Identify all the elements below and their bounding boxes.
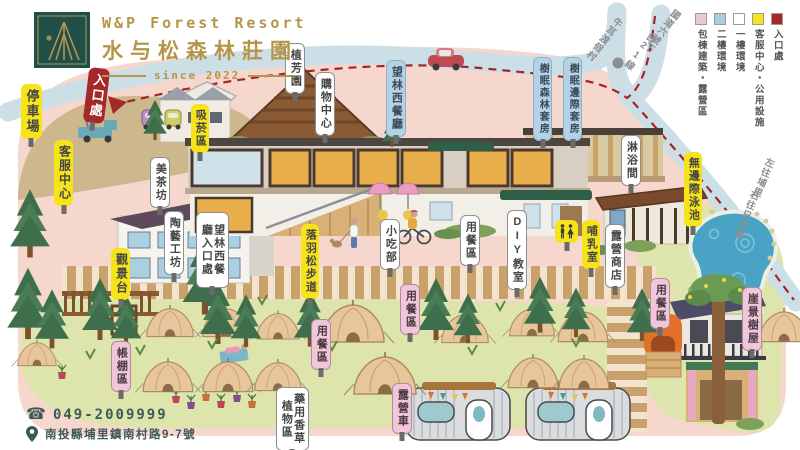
map-label-edge-suite: 樹眠邊際套房 [563, 57, 582, 141]
since-text: since 2022 [154, 69, 240, 82]
map-label-nursing-room: 哺乳室 [582, 220, 600, 269]
map-label-dining-b: 用餐區 [400, 284, 420, 335]
map-label-smoking-area: 吸菸區 [191, 104, 209, 153]
flower-pot [217, 394, 225, 408]
brand-since: since 2022 [102, 69, 307, 82]
map-label-viewing-deck: 觀景台 [111, 248, 130, 300]
legend-label: 客服中心・公用設施 [753, 29, 763, 128]
map-legend: 包棟建築・露營區二樓環境一樓環境客服中心・公用設施入口處 [694, 13, 784, 128]
legend-swatch [714, 13, 726, 25]
map-label-infinity-pool: 無邊際泳池 [684, 152, 702, 227]
map-label-west-restaurant: 望林西餐廳 [386, 60, 406, 137]
camper-van-2 [526, 382, 630, 440]
legend-label: 包棟建築・露營區 [696, 29, 706, 117]
map-label-tent-area: 帳棚區 [111, 341, 131, 392]
legend-item: 包棟建築・露營區 [694, 13, 708, 128]
flower-pot [248, 394, 256, 408]
rule-line [248, 75, 292, 77]
map-label-cliff-treehouse: 崖景樹屋 [742, 287, 762, 351]
legend-item: 入口處 [770, 13, 784, 128]
map-label-diy-classroom: DIY教室 [507, 210, 527, 290]
location-pin-icon [26, 426, 38, 442]
restroom-icon [555, 220, 578, 243]
brand-title-en: W&P Forest Resort [102, 14, 307, 32]
legend-label: 一樓環境 [734, 29, 744, 73]
resort-map: W&P Forest Resort 水与松森林莊園 since 2022 包棟建… [0, 0, 800, 450]
map-label-forest-suite: 樹眠森林套房 [533, 57, 552, 141]
legend-swatch [733, 13, 745, 25]
map-label-parking: 停車場 [21, 84, 42, 139]
phone-icon: ☎ [26, 407, 46, 423]
phone-row: ☎ 049-2009999 [26, 407, 196, 423]
map-label-larch-trail: 落羽松步道 [301, 224, 319, 299]
legend-label: 二樓環境 [715, 29, 725, 73]
brand-header: W&P Forest Resort 水与松森林莊園 since 2022 [34, 12, 307, 82]
map-label-snack-bar: 小吃部 [380, 219, 400, 270]
legend-swatch [752, 13, 764, 25]
map-label-camper-van: 露營車 [392, 383, 412, 434]
legend-swatch [695, 13, 707, 25]
map-label-shower-room: 淋浴間 [621, 135, 641, 186]
brand-title-zh: 水与松森林莊園 [102, 35, 307, 65]
map-label-tea-house: 美茶坊 [150, 157, 170, 208]
address-text: 南投縣埔里鎮南村路9-7號 [45, 426, 196, 442]
map-label-herb-garden: 藥用香草植物區 [276, 387, 309, 450]
legend-item: 一樓環境 [732, 13, 746, 128]
map-label-service-center: 客服中心 [54, 140, 73, 206]
address-row: 南投縣埔里鎮南村路9-7號 [26, 426, 196, 442]
map-label-dining-d: 用餐區 [650, 278, 670, 329]
restroom-figures [558, 224, 575, 239]
phone-number: 049-2009999 [53, 407, 168, 423]
map-label-west-restaurant-entrance: 望林西餐廳入口處 [196, 212, 229, 288]
legend-item: 客服中心・公用設施 [751, 13, 765, 128]
map-label-dining-a: 用餐區 [460, 215, 480, 266]
rule-line [102, 75, 146, 77]
resort-logo [34, 12, 90, 68]
flower-pot [58, 365, 66, 379]
legend-swatch [771, 13, 783, 25]
contact-info: ☎ 049-2009999 南投縣埔里鎮南村路9-7號 [26, 404, 196, 442]
legend-item: 二樓環境 [713, 13, 727, 128]
map-label-camp-store: 露營商店 [605, 224, 625, 288]
legend-label: 入口處 [772, 29, 782, 62]
map-label-dining-c: 用餐區 [311, 319, 331, 370]
map-label-shopping-center: 購物中心 [315, 72, 335, 136]
map-label-pottery-studio: 陶藝工坊 [164, 211, 184, 275]
